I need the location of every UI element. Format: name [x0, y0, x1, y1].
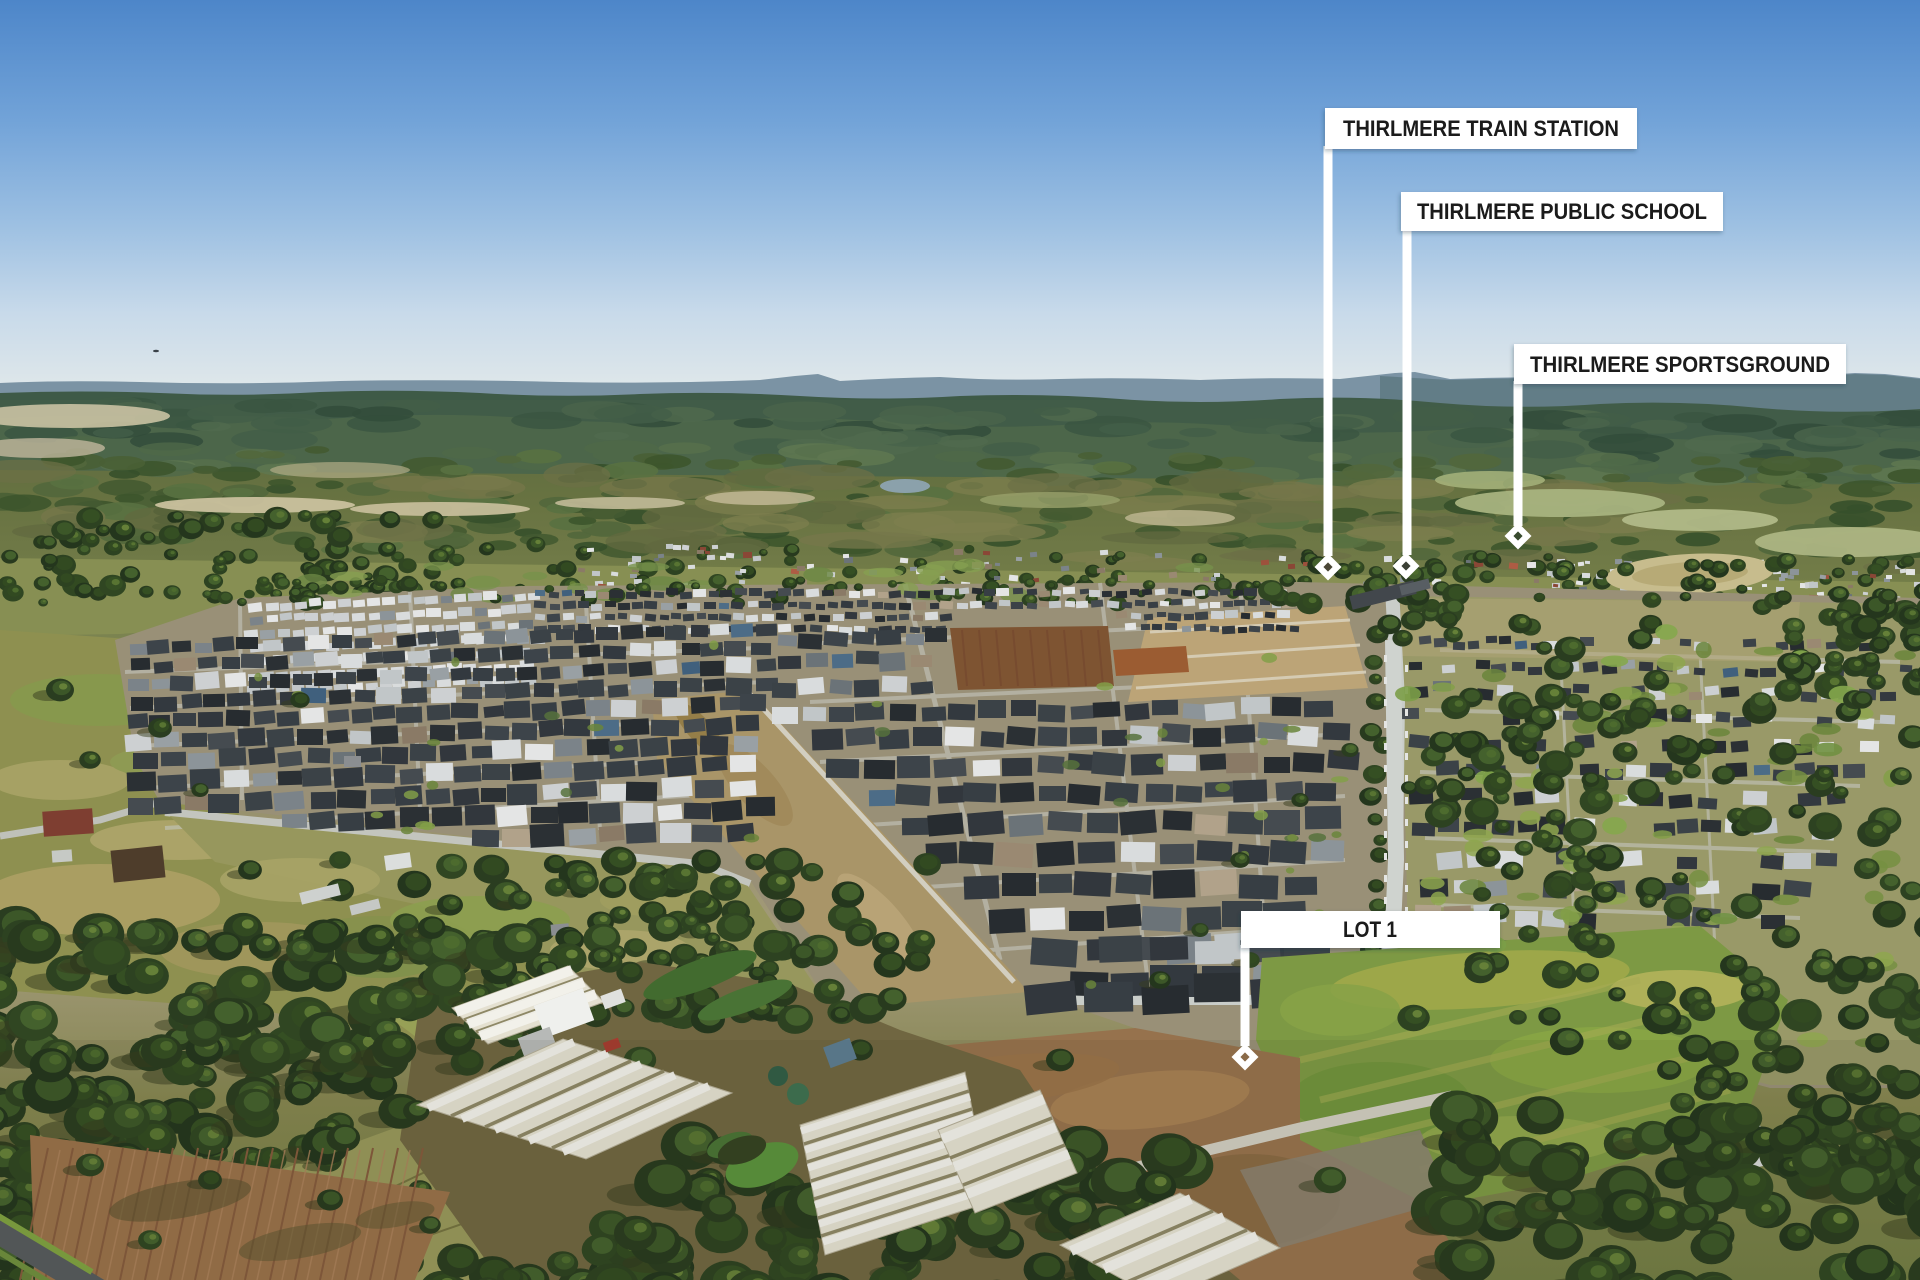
svg-text:THIRLMERE TRAIN STATION: THIRLMERE TRAIN STATION [1343, 116, 1619, 141]
svg-text:LOT 1: LOT 1 [1343, 917, 1397, 942]
svg-text:THIRLMERE SPORTSGROUND: THIRLMERE SPORTSGROUND [1530, 352, 1830, 377]
svg-text:THIRLMERE PUBLIC SCHOOL: THIRLMERE PUBLIC SCHOOL [1417, 199, 1707, 224]
